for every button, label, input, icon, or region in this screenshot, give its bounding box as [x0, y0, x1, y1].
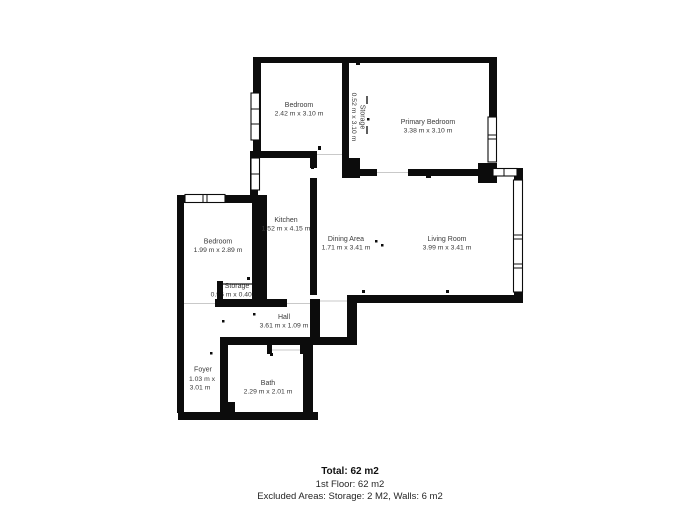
room-label-bedroom-top: Bedroom 2.42 m x 3.10 m — [275, 102, 324, 118]
room-label-kitchen: Kitchen 1.52 m x 4.15 m — [262, 217, 311, 233]
first-floor-area: 1st Floor: 62 m2 — [0, 479, 700, 491]
room-name: Living Room — [428, 236, 467, 243]
room-name: Bedroom — [204, 239, 233, 246]
room-dims: 1.71 m x 3.41 m — [322, 245, 371, 252]
room-name: Foyer — [194, 367, 213, 374]
room-name: Dining Area — [328, 236, 364, 243]
room-label-foyer: Foyer 1.03 m x 3.01 m — [189, 367, 216, 392]
window-symbol — [251, 93, 260, 140]
floorplan-page: Storage 0.96 m x 0.40 m — [0, 0, 700, 525]
room-labels: Bedroom 2.42 m x 3.10 m Storage 0.52 m x… — [189, 93, 472, 396]
room-dims: 3.61 m x 1.09 m — [260, 323, 309, 330]
room-name: Hall — [278, 314, 291, 321]
room-name: Bedroom — [285, 102, 314, 109]
room-dims: 3.38 m x 3.10 m — [404, 128, 453, 135]
room-name: Kitchen — [274, 217, 297, 224]
room-label-bedroom-left: Bedroom 1.99 m x 2.89 m — [194, 239, 243, 255]
room-label-hall: Hall 3.61 m x 1.09 m — [260, 314, 309, 330]
window-symbol — [493, 169, 517, 177]
room-name: Bath — [261, 380, 276, 387]
room-dims: 0.52 m x 3.10 m — [350, 93, 357, 142]
window-symbol — [185, 195, 225, 203]
room-label-storage-closet: Storage 0.52 m x 3.10 m — [350, 93, 366, 142]
window-symbol — [514, 180, 523, 292]
room-dims: 1.99 m x 2.89 m — [194, 247, 243, 254]
room-label-primary-bedroom: Primary Bedroom 3.38 m x 3.10 m — [401, 119, 456, 135]
window-symbol — [251, 158, 260, 190]
room-name: Primary Bedroom — [401, 119, 456, 126]
room-dims: 1.03 m x — [189, 376, 216, 383]
room-label-living-room: Living Room 3.99 m x 3.41 m — [423, 236, 472, 252]
floor-plan: Storage 0.96 m x 0.40 m — [0, 0, 700, 525]
room-name: Storage — [359, 105, 366, 130]
room-dims: 1.52 m x 4.15 m — [262, 226, 311, 233]
room-dims: 2.42 m x 3.10 m — [275, 111, 324, 118]
room-label-bath: Bath 2.29 m x 2.01 m — [244, 380, 293, 396]
room-dims: 2.29 m x 2.01 m — [244, 389, 293, 396]
room-label-dining-area: Dining Area 1.71 m x 3.41 m — [322, 236, 371, 252]
total-area: Total: 62 m2 — [0, 466, 700, 479]
room-dims: 3.01 m — [190, 385, 211, 392]
excluded-areas: Excluded Areas: Storage: 2 M2, Walls: 6 … — [0, 491, 700, 503]
room-dims: 3.99 m x 3.41 m — [423, 245, 472, 252]
window-symbol — [488, 117, 497, 162]
area-summary: Total: 62 m2 1st Floor: 62 m2 Excluded A… — [0, 466, 700, 503]
